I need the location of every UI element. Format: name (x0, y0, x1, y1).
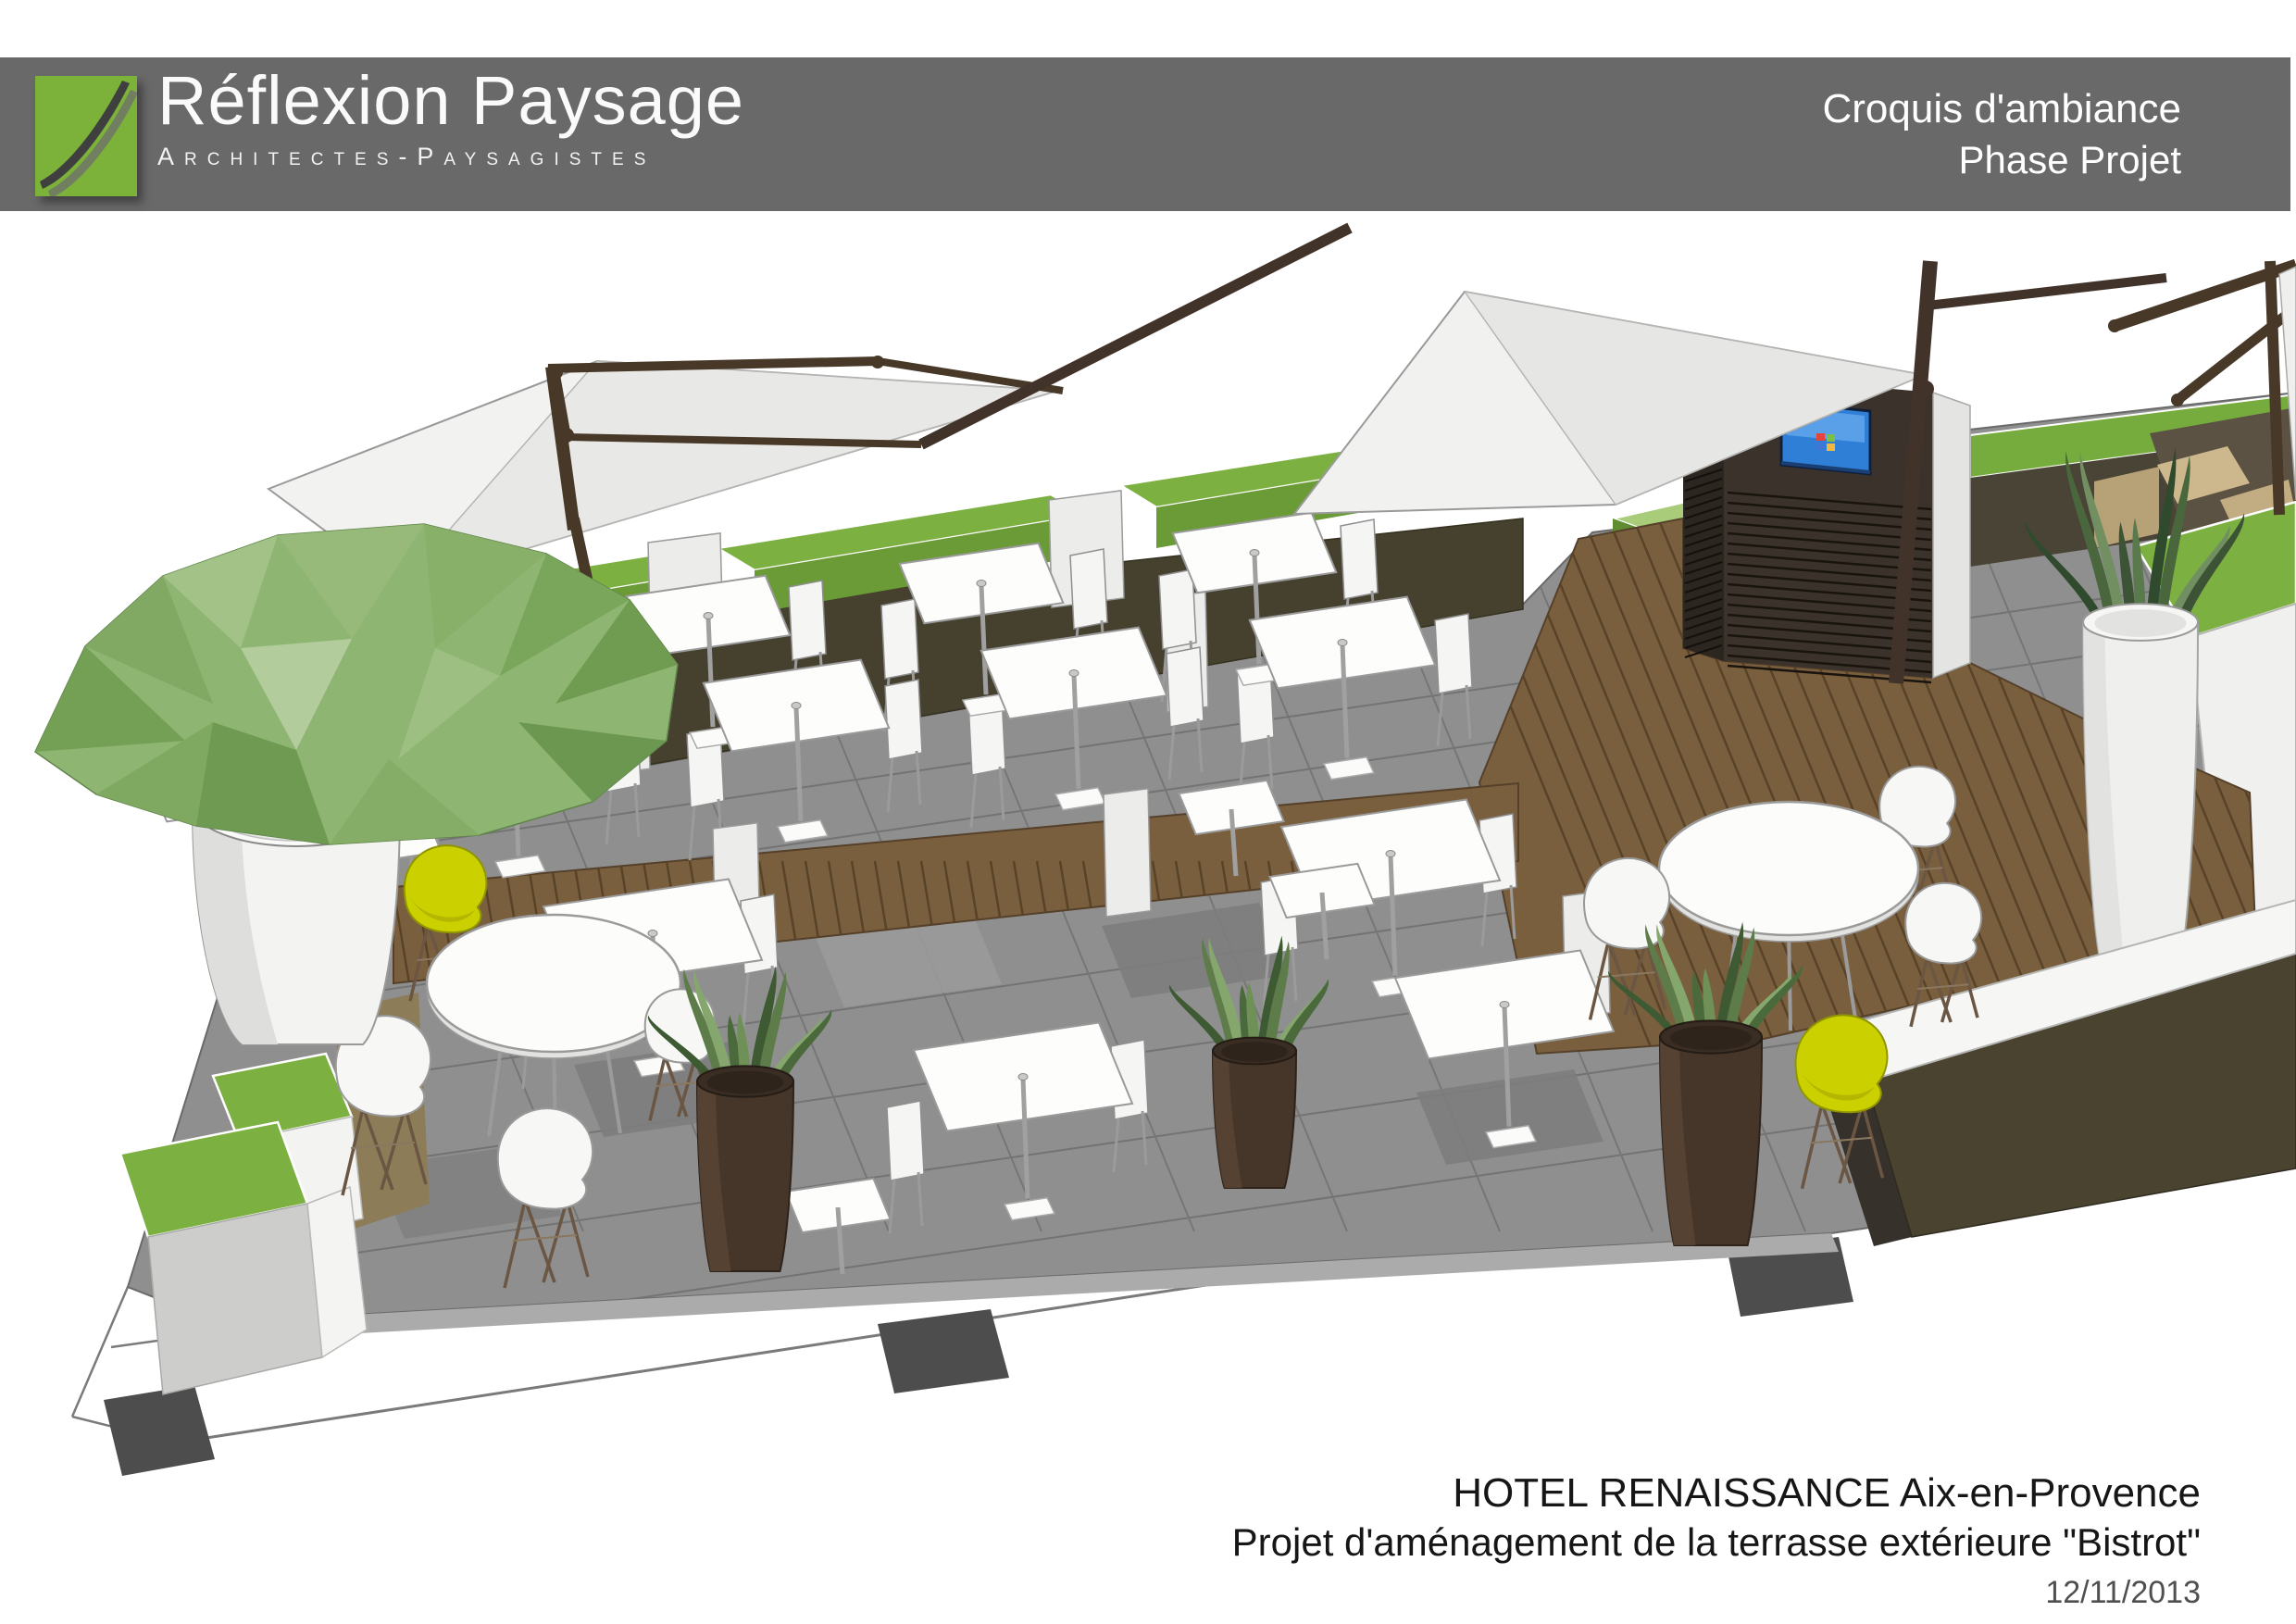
side-chair (887, 1101, 924, 1181)
header-right-block: Croquis d'ambiance Phase Projet (1823, 86, 2182, 182)
sidewalk-dark-tile (878, 1309, 1009, 1393)
side-chair (1070, 549, 1107, 629)
white-shell-chair (1905, 883, 1981, 964)
doc-type-label: Croquis d'ambiance (1823, 86, 2182, 132)
page-title: Réflexion Paysage (157, 61, 744, 141)
side-chair (1435, 614, 1472, 693)
title-block: HOTEL RENAISSANCE Aix-en-Provence Projet… (1232, 1470, 2201, 1611)
project-name: HOTEL RENAISSANCE Aix-en-Provence (1232, 1470, 2201, 1517)
terrace-perspective-rendering (0, 0, 2296, 1624)
header-bar: Réflexion Paysage Architectes-Paysagiste… (0, 57, 2290, 211)
phase-label: Phase Projet (1823, 138, 2182, 182)
side-chair (885, 680, 922, 759)
white-pillar (1933, 393, 1970, 678)
side-chair (1167, 647, 1204, 727)
brand-block: Réflexion Paysage Architectes-Paysagiste… (157, 61, 744, 171)
presentation-sheet: Réflexion Paysage Architectes-Paysagiste… (0, 0, 2296, 1624)
side-chair (881, 599, 918, 679)
date-label: 12/11/2013 (1232, 1574, 2201, 1611)
round-table (1659, 802, 1918, 935)
page-subtitle: Architectes-Paysagistes (157, 143, 744, 171)
white-shell-chair (1584, 858, 1669, 949)
side-chair (1159, 569, 1196, 649)
project-description: Projet d'aménagement de la terrasse exté… (1232, 1520, 2201, 1565)
white-shell-chair (498, 1108, 593, 1208)
side-chair (789, 581, 826, 660)
side-chair (1341, 519, 1378, 599)
reflexion-paysage-logo (35, 76, 137, 196)
logo-swoosh-icon (35, 76, 137, 196)
separation-panel (1104, 789, 1151, 917)
round-table (427, 915, 680, 1052)
sidewalk-dark-tile (104, 1385, 215, 1476)
